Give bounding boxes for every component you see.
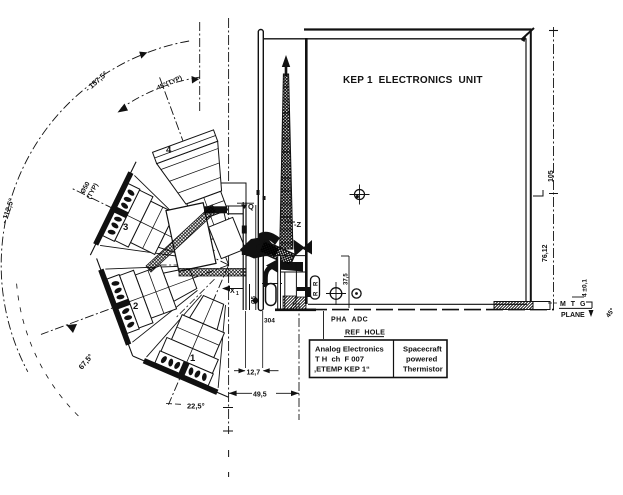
svg-text:4: 4 [166,145,172,156]
svg-text:76,12: 76,12 [542,244,549,262]
svg-text:powered: powered [406,355,438,364]
svg-text:KEP 1 ELECTRONICS UNIT: KEP 1 ELECTRONICS UNIT [343,75,483,86]
svg-text:3: 3 [123,222,128,233]
svg-text:105: 105 [548,170,555,182]
svg-text:Analog Electronics: Analog Electronics [315,345,384,354]
svg-text:PLANE: PLANE [561,312,585,319]
svg-text:Q: Q [248,202,254,211]
svg-text:R R: R R [314,280,320,296]
svg-text:304: 304 [264,318,275,325]
svg-text:M T G: M T G [560,301,587,308]
svg-text:PHA ADC: PHA ADC [331,317,368,324]
svg-text:‚ETEMP KEP 1“: ‚ETEMP KEP 1“ [314,365,370,374]
svg-text:Thermistor: Thermistor [403,365,443,374]
svg-text:1: 1 [236,291,239,297]
svg-text:-Z: -Z [294,220,301,229]
svg-text:4 ±0,1: 4 ±0,1 [582,279,589,297]
svg-text:2: 2 [133,301,138,312]
svg-text:Ø5: Ø5 [252,295,258,304]
svg-text:22,5°: 22,5° [187,402,205,411]
svg-text:49,5: 49,5 [253,391,267,398]
svg-text:X: X [230,288,235,295]
svg-text:1: 1 [190,353,196,364]
svg-text:REF HOLE: REF HOLE [345,328,385,337]
svg-text:T H ch F 007: T H ch F 007 [315,355,364,364]
svg-text:12,7: 12,7 [247,370,261,377]
svg-text:37,5: 37,5 [344,273,350,285]
svg-text:Spacecraft: Spacecraft [403,345,442,354]
